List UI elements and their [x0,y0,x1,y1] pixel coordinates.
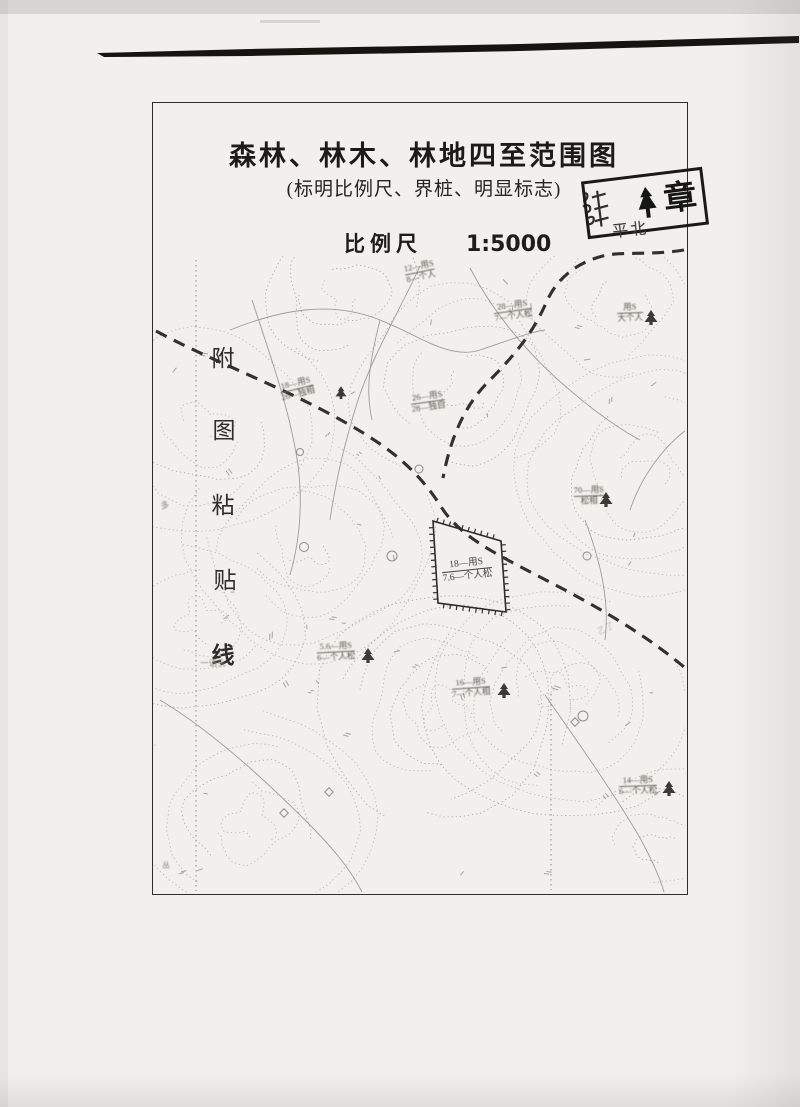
contour-line [526,223,692,378]
contour-line [148,730,361,907]
parcel-hatch-tick [463,606,464,610]
contour-line [317,596,570,816]
vegetation-tick [357,524,361,525]
contour-line [182,759,311,855]
vegetation-tick [534,774,538,777]
parcel-hatch-tick [474,529,475,533]
contour-line [291,248,348,351]
scan-shadow-left [0,0,8,1107]
vegetation-tick [229,469,233,474]
vegetation-tick [547,871,552,872]
vegetation-tick [654,382,657,384]
contour-line [322,279,356,320]
handwritten-note: 平北 [611,214,649,242]
scanned-document-page: 森林、林木、林地四至范围图 (标明比例尺、界桩、明显标志) 比例尺 1:5000 [0,0,800,1107]
parcel-hatch-tick [462,525,463,529]
contour-line [236,486,384,618]
vegetation-tick [577,325,582,326]
parcel-hatch-tick [468,527,469,531]
map-label: 用S 大个人 [617,302,643,324]
vegetation-tick [415,665,419,666]
parcel-hatch-tick [469,607,470,612]
vegetation-tick [554,686,561,688]
tree-icon [335,310,675,796]
parcel-hatch-tick [443,520,444,524]
vegetation-tick [431,319,432,325]
vegetation-tick [651,384,654,386]
contour-line [551,243,674,356]
vegetation-tick [394,651,400,652]
vegetation-tick [181,871,186,872]
vegetation-tick [203,793,207,794]
vegetation-tick [346,733,351,734]
vegetation-tick [633,533,635,537]
contour-line [526,663,601,708]
contour-line [621,460,670,484]
contour-line [257,491,366,592]
vegetation-marks [173,264,661,875]
vegetation-tick [359,452,361,454]
parcel-hatch-tick [449,522,450,526]
stamp-character: 章 [662,180,699,217]
vegetation-tick [173,368,177,373]
vegetation-tick [605,793,608,796]
contour-line [633,835,676,863]
vegetation-tick [393,555,394,560]
vegetation-tick [286,681,289,686]
contour-lines [86,221,774,933]
vegetation-tick [412,667,416,668]
parcel-hatch-tick [456,606,457,611]
paste-line-char: 粘 [203,486,243,520]
contour-line [592,282,608,317]
vegetation-tick [575,327,580,328]
vegetation-tick [316,680,319,684]
contour-line [623,787,726,902]
vegetation-tick [603,795,606,798]
parcel-hatch-tick [476,608,477,612]
parcel-hatch-tick [450,605,451,609]
vegetation-tick [179,873,184,874]
contour-line [563,397,741,559]
contour-line [397,298,561,457]
map-label: 14—用S 6—个人松 [619,775,658,797]
terrain-diamond-symbols [280,718,579,817]
vegetation-tick [552,688,559,690]
contour-line [490,627,633,743]
vegetation-tick [326,434,328,437]
contour-line [571,415,715,540]
parcel-hatch-tick [437,518,438,522]
vegetation-tick [197,869,203,871]
paste-line-char: 附 [203,339,243,373]
parcel-hatch-tick [501,612,502,616]
contour-line [218,782,299,866]
parcel-hatch-tick [493,534,494,538]
contour-line [101,553,305,708]
vegetation-tick [503,279,508,284]
paste-line-char: 图 [204,411,244,445]
vegetation-tick [332,617,337,618]
contour-line [276,524,330,587]
contour-line [527,369,741,575]
contour-line [463,355,504,428]
contour-line [360,624,542,799]
topographic-map-drawing [0,0,800,1107]
vegetation-tick [584,359,591,360]
contour-line [298,265,392,325]
vegetation-tick [329,619,334,620]
contour-line [343,605,549,817]
dashed-road-line [156,250,684,667]
map-label: 多 [160,500,170,511]
map-label: 丛 [162,862,170,871]
vegetation-tick [379,476,381,480]
contour-line [517,641,620,719]
contour-line [474,633,644,772]
vegetation-tick [351,392,355,394]
map-label: 70—用S 松相 [574,485,605,507]
map-label: 一语头 [200,659,226,669]
vegetation-tick [628,562,631,566]
map-label: 5.6—用S 6—个人松 [316,640,355,663]
parcel-hatch-tick [489,610,490,614]
contour-line [372,638,478,771]
vegetation-tick [461,871,464,875]
contour-line [221,793,277,840]
vegetation-tick [501,667,507,668]
vegetation-tick [226,471,230,476]
vegetation-tick [544,873,549,874]
parcel-hatch-tick [487,533,488,537]
vegetation-tick [328,432,330,435]
vegetation-tick [625,722,630,725]
vegetation-tick [537,772,541,775]
contour-line [137,419,264,479]
contour-line [166,743,279,882]
paste-line-dotted [196,260,551,891]
parcel-hatch-tick [495,611,496,616]
contour-line [612,814,710,883]
parcel-hatch-tick [443,604,444,609]
contour-line [134,711,378,934]
parcel-hatch-tick [481,531,482,535]
contour-line [538,672,588,711]
scan-shadow-right [730,0,800,1107]
contour-line [266,221,420,361]
scan-shadow-bottom [0,1073,800,1107]
vegetation-tick [357,454,359,456]
vegetation-tick [283,683,286,688]
paste-line-char: 贴 [205,561,245,595]
vegetation-tick [343,735,348,736]
vegetation-tick [226,615,229,617]
parcel-hatch-tick [482,609,483,614]
contour-line [442,370,484,408]
parcel-label: 18—用S 7.6—个人松 [441,556,493,586]
map-label: 16—用S 7—个人相 [451,676,491,700]
contour-line [590,424,694,532]
